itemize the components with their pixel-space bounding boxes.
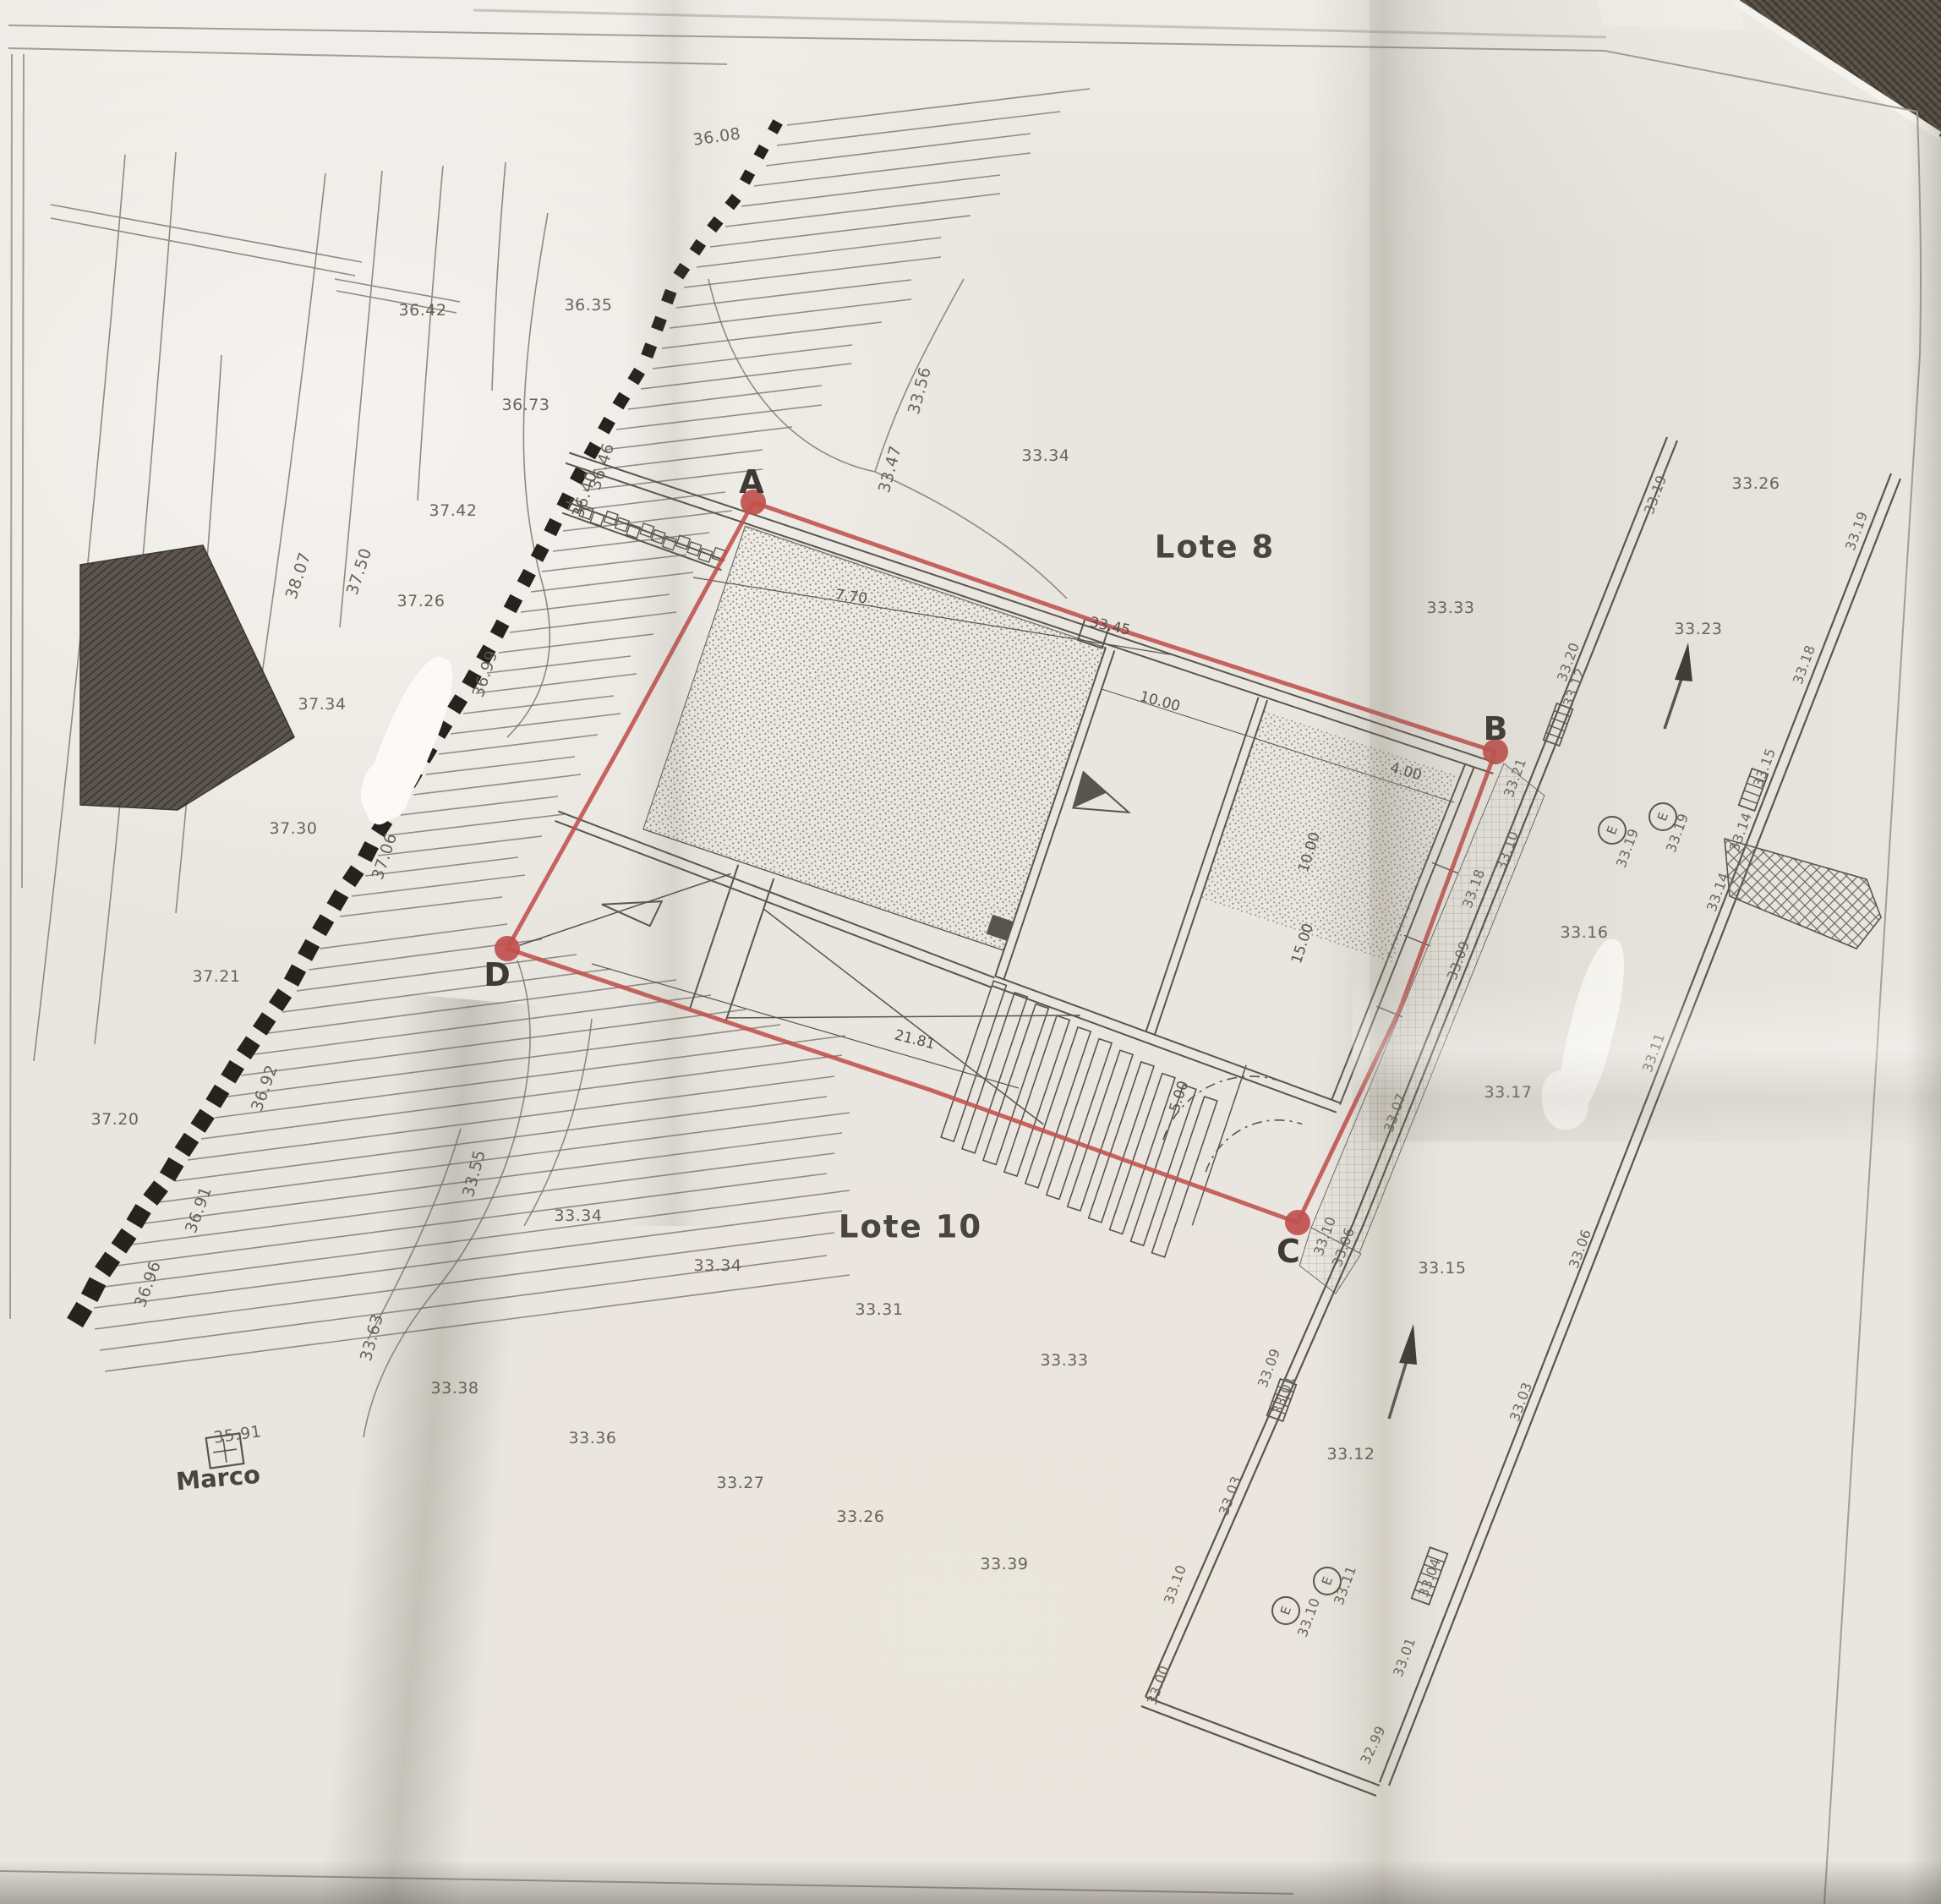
corner-point-letter: C [1277,1233,1300,1270]
dimension-label: 7.70 [834,586,868,607]
dimension-label: 4.00 [1388,759,1424,784]
elevation-label: 37.50 [343,546,376,598]
elevation-label: 36.40 [569,469,602,521]
elevation-label: 36.35 [565,296,613,315]
elevation-label: 33.55 [459,1148,489,1200]
road-elevation-label: 33.01 [1390,1635,1419,1678]
corner-point-letter: A [739,463,763,501]
road-elevation-label: 33.06 [1566,1227,1594,1270]
utility-post-letter: E [1604,823,1621,836]
elevation-label: 33.34 [1022,446,1070,465]
elevation-label: 33.27 [717,1474,765,1492]
corner-point-letter: B [1484,710,1508,747]
elevation-label: 33.17 [1484,1083,1533,1102]
elevation-label: 33.23 [1675,620,1723,638]
corner-point-letter: D [484,956,511,993]
road-elevation-label: 33.18 [1790,643,1818,686]
elevation-label: 35.91 [212,1422,262,1447]
dimension-label: 5.00 [1167,1079,1193,1114]
road-elevation-label: 33.19 [1842,509,1871,552]
elevation-label: 36.08 [692,124,741,150]
elevation-label: 33.63 [357,1312,387,1364]
road-elevation-label: 33.14 [1726,810,1755,853]
elevation-label: 33.33 [1427,599,1475,617]
road-elevation-label: 33.15 [1750,746,1779,789]
road-elevation-label: 32.99 [1357,1723,1388,1766]
road-elevation-label: 33.00 [1144,1663,1173,1706]
road-elevation-label: 33.03 [1506,1380,1535,1423]
elevation-label: 36.42 [399,301,447,320]
road-elevation-label: 33.11 [1639,1031,1668,1074]
site-plan-photo: 36.0836.4236.3536.7337.4237.2637.3437.30… [0,0,1941,1904]
elevation-label: 37.34 [298,695,347,714]
elevation-label: 33.36 [569,1429,617,1447]
elevation-label: 37.26 [397,592,446,610]
elevation-label: 37.30 [270,819,318,838]
dimension-label: 21.81 [893,1026,937,1053]
elevation-label: 37.20 [91,1110,139,1129]
utility-post-letter: E [1654,810,1671,823]
elevation-label: 33.15 [1419,1259,1467,1278]
elevation-label: 33.26 [837,1507,885,1526]
road-elevation-label: 33.04 [1415,1556,1444,1599]
elevation-label: 37.21 [193,967,241,986]
road-elevation-label: 33.09 [1444,938,1473,982]
labels-layer: 36.0836.4236.3536.7337.4237.2637.3437.30… [0,0,1941,1904]
road-elevation-label: 33.03 [1216,1474,1244,1517]
road-elevation-label: 33.21 [1501,756,1529,799]
road-elevation-label: 33.14 [1703,870,1732,913]
benchmark-label: Marco [175,1460,261,1496]
elevation-label: 33.33 [1041,1351,1089,1370]
elevation-label: 33.12 [1327,1445,1375,1464]
elevation-label: 33.16 [1561,923,1609,942]
dimension-label: 33.45 [1088,614,1132,639]
elevation-label: 33.34 [555,1206,603,1225]
utility-post-letter: E [1277,1604,1294,1617]
elevation-label: 33.31 [856,1300,904,1319]
dimension-label: 10.00 [1295,830,1324,874]
elevation-label: 36.92 [248,1063,282,1114]
utility-post-letter: E [1319,1574,1336,1587]
road-elevation-label: 33.11 [1331,1563,1359,1606]
road-elevation-label: 33.10 [1161,1562,1189,1606]
elevation-label: 33.38 [431,1379,479,1398]
road-elevation-label: 33.07 [1381,1091,1409,1134]
elevation-label: 36.91 [182,1185,216,1236]
dimension-label: 15.00 [1288,922,1317,966]
elevation-label: 37.42 [429,501,478,520]
elevation-label: 33.39 [981,1555,1029,1573]
road-elevation-label: 33.18 [1459,867,1488,910]
elevation-label: 33.56 [905,365,935,417]
elevation-label: 33.34 [694,1256,742,1275]
dimension-label: 10.00 [1138,688,1182,715]
road-elevation-label: 33.19 [1641,473,1670,516]
elevation-label: 33.26 [1732,474,1780,493]
elevation-label: 36.96 [131,1259,165,1310]
road-elevation-label: 33.10 [1493,829,1522,872]
elevation-label: 37.06 [369,831,402,883]
elevation-label: 36.73 [502,396,550,414]
elevation-label: 36.99 [469,648,502,700]
road-elevation-label: 33.10 [1294,1595,1323,1639]
elevation-label: 33.47 [875,444,905,495]
lot-name-label: Lote 10 [839,1209,982,1245]
road-elevation-label: 33.01 [1269,1373,1298,1416]
lot-name-label: Lote 8 [1155,529,1275,566]
elevation-label: 38.07 [282,550,315,602]
